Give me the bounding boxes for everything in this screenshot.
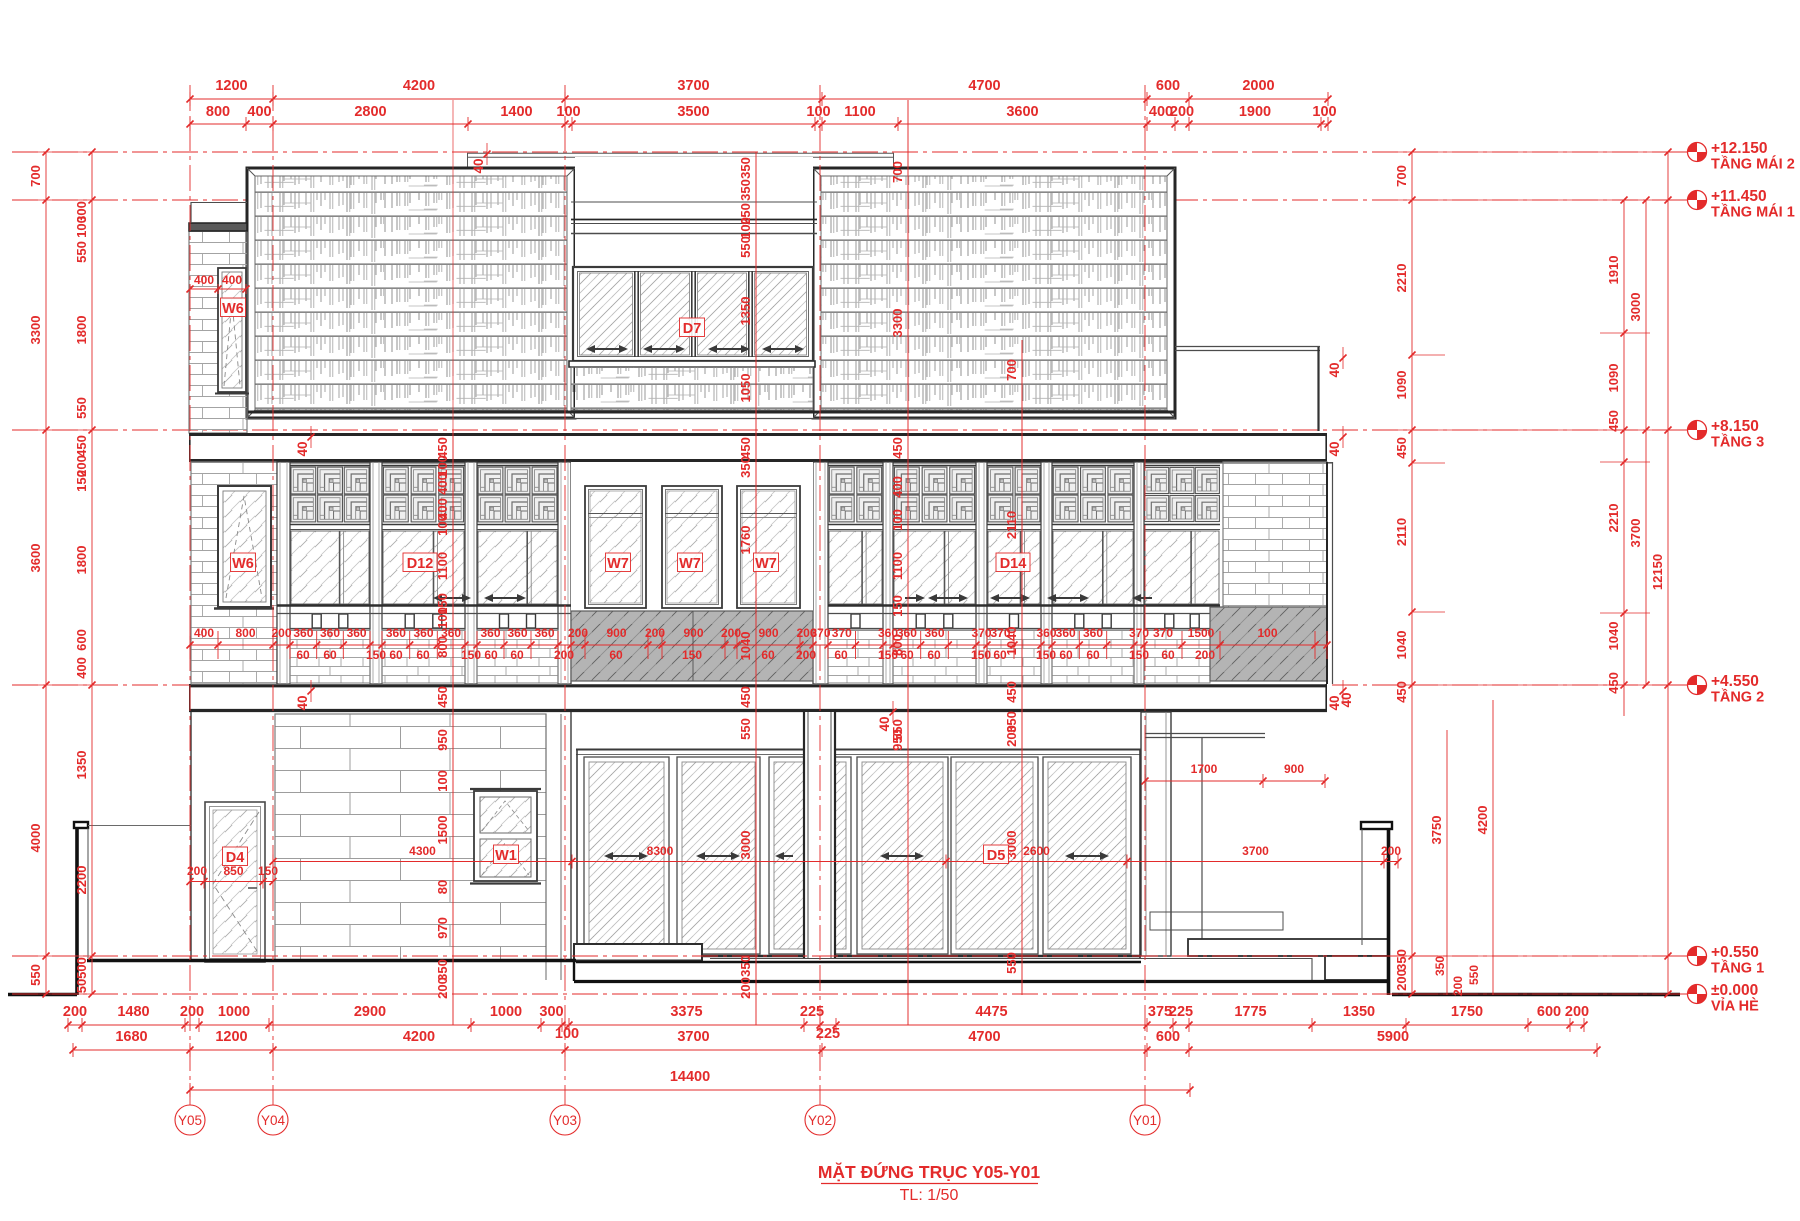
svg-text:200: 200: [1394, 969, 1409, 991]
svg-text:400: 400: [194, 626, 214, 640]
svg-text:360: 360: [534, 626, 554, 640]
svg-text:370: 370: [810, 626, 830, 640]
svg-text:50: 50: [74, 979, 89, 993]
svg-text:450: 450: [1606, 410, 1621, 432]
svg-text:800: 800: [206, 104, 230, 120]
svg-text:1350: 1350: [74, 751, 89, 780]
svg-text:100: 100: [738, 217, 753, 239]
svg-text:14400: 14400: [670, 1069, 710, 1085]
svg-text:4300: 4300: [409, 844, 436, 858]
svg-text:60: 60: [1086, 648, 1100, 662]
svg-text:12150: 12150: [1650, 554, 1665, 590]
svg-text:W7: W7: [679, 556, 701, 572]
svg-text:3700: 3700: [1628, 519, 1643, 548]
svg-text:150: 150: [971, 648, 991, 662]
svg-text:600: 600: [1156, 78, 1180, 94]
svg-text:60: 60: [484, 648, 498, 662]
svg-text:60: 60: [761, 648, 775, 662]
svg-text:550: 550: [28, 964, 43, 986]
svg-text:550: 550: [738, 718, 753, 740]
svg-text:1090: 1090: [1606, 364, 1621, 393]
svg-text:400: 400: [890, 476, 905, 498]
svg-text:Y01: Y01: [1133, 1113, 1157, 1128]
svg-text:40: 40: [877, 716, 892, 731]
svg-text:40: 40: [1327, 362, 1342, 377]
svg-text:3600: 3600: [1006, 104, 1038, 120]
svg-text:4700: 4700: [968, 78, 1000, 94]
svg-text:3000: 3000: [738, 831, 753, 860]
svg-text:200: 200: [568, 626, 588, 640]
svg-text:850: 850: [223, 864, 243, 878]
svg-text:±0.000: ±0.000: [1711, 982, 1758, 999]
svg-text:+11.450: +11.450: [1711, 188, 1767, 205]
svg-text:1040: 1040: [1606, 622, 1621, 651]
svg-text:360: 360: [507, 626, 527, 640]
svg-text:TẦNG 3: TẦNG 3: [1711, 434, 1764, 451]
svg-text:150: 150: [461, 648, 481, 662]
svg-text:200: 200: [1451, 976, 1465, 996]
svg-text:60: 60: [1059, 648, 1073, 662]
svg-text:400: 400: [194, 273, 214, 287]
svg-text:TẦNG 2: TẦNG 2: [1711, 689, 1764, 706]
svg-text:D12: D12: [407, 556, 434, 572]
svg-text:350: 350: [738, 456, 753, 478]
svg-text:200: 200: [1381, 844, 1401, 858]
svg-text:450: 450: [435, 686, 450, 708]
svg-text:225: 225: [1169, 1004, 1193, 1020]
svg-text:W6: W6: [222, 301, 244, 317]
svg-text:TL: 1/50: TL: 1/50: [900, 1187, 959, 1204]
svg-text:+8.150: +8.150: [1711, 418, 1759, 435]
svg-text:360: 360: [1056, 626, 1076, 640]
svg-text:100: 100: [890, 509, 905, 531]
svg-text:VỈA HÈ: VỈA HÈ: [1711, 998, 1759, 1015]
svg-text:2210: 2210: [1606, 504, 1621, 533]
svg-text:3300: 3300: [890, 309, 905, 338]
svg-text:+12.150: +12.150: [1711, 140, 1767, 157]
svg-text:1775: 1775: [1234, 1004, 1266, 1020]
svg-text:100: 100: [555, 1026, 579, 1042]
svg-text:360: 360: [1036, 626, 1056, 640]
svg-text:200: 200: [1195, 648, 1215, 662]
svg-text:2800: 2800: [354, 104, 386, 120]
svg-text:1500: 1500: [1188, 626, 1215, 640]
svg-text:W7: W7: [607, 556, 629, 572]
svg-text:450: 450: [1394, 681, 1409, 703]
svg-text:1900: 1900: [1239, 104, 1271, 120]
svg-text:200: 200: [1565, 1004, 1589, 1020]
svg-text:800: 800: [235, 626, 255, 640]
svg-text:1700: 1700: [1191, 762, 1218, 776]
svg-text:W1: W1: [495, 848, 517, 864]
svg-text:3700: 3700: [677, 1029, 709, 1045]
svg-text:40: 40: [471, 158, 486, 173]
svg-text:370: 370: [971, 626, 991, 640]
svg-text:TẦNG MÁI 1: TẦNG MÁI 1: [1711, 204, 1795, 221]
svg-text:W6: W6: [232, 556, 254, 572]
svg-text:40: 40: [295, 695, 310, 710]
svg-text:100: 100: [435, 607, 450, 629]
svg-text:60: 60: [389, 648, 403, 662]
svg-text:1100: 1100: [844, 104, 875, 120]
svg-text:450: 450: [1004, 681, 1019, 703]
svg-text:500: 500: [74, 957, 89, 979]
svg-text:1040: 1040: [1004, 627, 1019, 656]
svg-text:150: 150: [1129, 648, 1149, 662]
svg-text:D14: D14: [1000, 556, 1027, 572]
svg-text:100: 100: [1257, 626, 1277, 640]
svg-text:400: 400: [247, 104, 271, 120]
svg-text:900: 900: [1284, 762, 1304, 776]
svg-text:1350: 1350: [1343, 1004, 1375, 1020]
svg-text:950: 950: [435, 729, 450, 751]
svg-text:2900: 2900: [354, 1004, 386, 1020]
svg-text:40: 40: [1339, 692, 1354, 707]
svg-text:100: 100: [1312, 104, 1336, 120]
svg-text:1000: 1000: [218, 1004, 250, 1020]
svg-text:60: 60: [416, 648, 430, 662]
svg-text:W7: W7: [755, 556, 777, 572]
svg-text:400: 400: [74, 657, 89, 679]
svg-text:60: 60: [834, 648, 848, 662]
svg-text:600: 600: [1156, 1029, 1180, 1045]
svg-text:40: 40: [295, 441, 310, 456]
svg-text:550: 550: [74, 241, 89, 263]
svg-text:450: 450: [1394, 437, 1409, 459]
svg-text:1760: 1760: [738, 526, 753, 555]
svg-text:3700: 3700: [677, 78, 709, 94]
svg-text:4200: 4200: [1475, 806, 1490, 835]
svg-text:3500: 3500: [677, 104, 709, 120]
svg-text:700: 700: [28, 165, 43, 187]
svg-text:700: 700: [1004, 359, 1019, 381]
svg-text:800: 800: [890, 634, 905, 656]
svg-text:550: 550: [74, 397, 89, 419]
svg-text:600: 600: [1537, 1004, 1561, 1020]
svg-text:150: 150: [1036, 648, 1056, 662]
svg-text:450: 450: [1606, 672, 1621, 694]
svg-text:2200: 2200: [74, 866, 89, 895]
svg-text:360: 360: [293, 626, 313, 640]
svg-text:360: 360: [480, 626, 500, 640]
svg-text:1500: 1500: [435, 816, 450, 845]
svg-text:450: 450: [738, 437, 753, 459]
svg-text:370: 370: [1129, 626, 1149, 640]
svg-text:60: 60: [296, 648, 310, 662]
svg-text:225: 225: [816, 1026, 840, 1042]
svg-text:200: 200: [63, 1004, 87, 1020]
svg-text:200: 200: [1170, 104, 1194, 120]
svg-text:100: 100: [806, 104, 830, 120]
svg-text:80: 80: [435, 880, 450, 894]
svg-text:1680: 1680: [115, 1029, 147, 1045]
svg-text:150: 150: [258, 864, 278, 878]
svg-text:+4.550: +4.550: [1711, 673, 1759, 690]
svg-text:350: 350: [1433, 956, 1447, 976]
svg-text:370: 370: [1153, 626, 1173, 640]
svg-text:225: 225: [800, 1004, 824, 1020]
svg-text:100: 100: [435, 514, 450, 536]
svg-text:450: 450: [738, 686, 753, 708]
svg-text:200: 200: [271, 626, 291, 640]
svg-text:1910: 1910: [1606, 256, 1621, 285]
svg-text:3700: 3700: [1242, 844, 1269, 858]
svg-text:1040: 1040: [1394, 631, 1409, 660]
svg-text:450: 450: [890, 437, 905, 459]
svg-text:200: 200: [180, 1004, 204, 1020]
svg-text:4200: 4200: [403, 78, 435, 94]
svg-text:1100: 1100: [890, 552, 905, 580]
svg-text:3750: 3750: [1429, 816, 1444, 845]
svg-text:2600: 2600: [1023, 844, 1050, 858]
svg-text:970: 970: [435, 917, 450, 939]
svg-text:Y02: Y02: [808, 1113, 832, 1128]
svg-text:1350: 1350: [738, 297, 753, 326]
svg-text:100: 100: [556, 104, 580, 120]
svg-text:150: 150: [74, 470, 89, 492]
svg-text:TẦNG MÁI 2: TẦNG MÁI 2: [1711, 156, 1795, 173]
svg-text:550: 550: [1467, 965, 1481, 985]
svg-text:700: 700: [1394, 165, 1409, 187]
svg-text:200: 200: [1004, 725, 1019, 747]
svg-text:1800: 1800: [74, 316, 89, 345]
svg-text:200: 200: [187, 864, 207, 878]
svg-text:900: 900: [758, 626, 778, 640]
svg-text:200: 200: [796, 648, 816, 662]
svg-text:2110: 2110: [1394, 518, 1409, 546]
svg-text:150: 150: [682, 648, 702, 662]
svg-text:60: 60: [927, 648, 941, 662]
svg-text:600: 600: [74, 629, 89, 651]
svg-text:350: 350: [738, 955, 753, 977]
svg-text:3600: 3600: [28, 544, 43, 573]
svg-text:360: 360: [924, 626, 944, 640]
svg-text:2210: 2210: [1394, 264, 1409, 293]
svg-text:550: 550: [738, 236, 753, 258]
svg-text:40: 40: [1327, 441, 1342, 456]
svg-text:1750: 1750: [1451, 1004, 1483, 1020]
svg-text:400: 400: [435, 473, 450, 495]
svg-text:1200: 1200: [215, 1029, 247, 1045]
svg-text:370: 370: [832, 626, 852, 640]
svg-text:1800: 1800: [74, 546, 89, 575]
svg-text:800: 800: [435, 636, 450, 658]
svg-text:D4: D4: [226, 850, 245, 866]
svg-text:60: 60: [510, 648, 524, 662]
svg-text:350: 350: [1394, 949, 1409, 971]
svg-text:4475: 4475: [975, 1004, 1007, 1020]
svg-text:8300: 8300: [647, 844, 674, 858]
svg-text:200: 200: [554, 648, 574, 662]
svg-text:1400: 1400: [500, 104, 532, 120]
svg-text:100: 100: [435, 770, 450, 792]
svg-text:4000: 4000: [28, 824, 43, 853]
svg-text:2110: 2110: [1004, 511, 1019, 539]
svg-text:3375: 3375: [670, 1004, 702, 1020]
svg-text:60: 60: [609, 648, 623, 662]
svg-text:+0.550: +0.550: [1711, 944, 1759, 961]
svg-text:4700: 4700: [968, 1029, 1000, 1045]
svg-text:150: 150: [366, 648, 386, 662]
svg-text:D5: D5: [987, 848, 1006, 864]
svg-text:360: 360: [1083, 626, 1103, 640]
svg-text:1050: 1050: [738, 374, 753, 403]
svg-text:3300: 3300: [28, 316, 43, 345]
svg-text:150: 150: [890, 595, 905, 617]
svg-text:360: 360: [386, 626, 406, 640]
svg-text:900: 900: [683, 626, 703, 640]
svg-text:MẶT ĐỨNG TRỤC Y05-Y01: MẶT ĐỨNG TRỤC Y05-Y01: [818, 1161, 1041, 1182]
svg-text:4200: 4200: [403, 1029, 435, 1045]
svg-text:300: 300: [539, 1004, 563, 1020]
svg-text:200: 200: [435, 977, 450, 999]
svg-text:900: 900: [606, 626, 626, 640]
svg-text:Y05: Y05: [178, 1113, 202, 1128]
svg-text:60: 60: [1161, 648, 1175, 662]
svg-text:1200: 1200: [215, 78, 247, 94]
svg-text:360: 360: [347, 626, 367, 640]
svg-text:550: 550: [1004, 952, 1019, 974]
svg-text:TẦNG 1: TẦNG 1: [1711, 960, 1764, 977]
svg-text:950: 950: [890, 729, 905, 751]
svg-text:450: 450: [74, 435, 89, 457]
svg-text:60: 60: [323, 648, 337, 662]
svg-text:700: 700: [890, 161, 905, 183]
svg-text:360: 360: [320, 626, 340, 640]
svg-text:1480: 1480: [117, 1004, 149, 1020]
svg-text:Y04: Y04: [261, 1113, 286, 1128]
svg-text:D7: D7: [683, 321, 702, 337]
svg-text:400: 400: [222, 273, 242, 287]
svg-text:200: 200: [738, 977, 753, 999]
svg-text:3000: 3000: [1628, 293, 1643, 322]
svg-text:2000: 2000: [1242, 78, 1274, 94]
svg-text:1040: 1040: [738, 632, 753, 661]
svg-text:200: 200: [645, 626, 665, 640]
svg-text:350: 350: [738, 179, 753, 201]
svg-text:1000: 1000: [490, 1004, 522, 1020]
svg-text:350: 350: [738, 157, 753, 179]
svg-text:5900: 5900: [1377, 1029, 1409, 1045]
svg-text:Y03: Y03: [553, 1113, 577, 1128]
svg-text:360: 360: [413, 626, 433, 640]
svg-text:100: 100: [74, 216, 89, 238]
svg-text:1090: 1090: [1394, 371, 1409, 400]
